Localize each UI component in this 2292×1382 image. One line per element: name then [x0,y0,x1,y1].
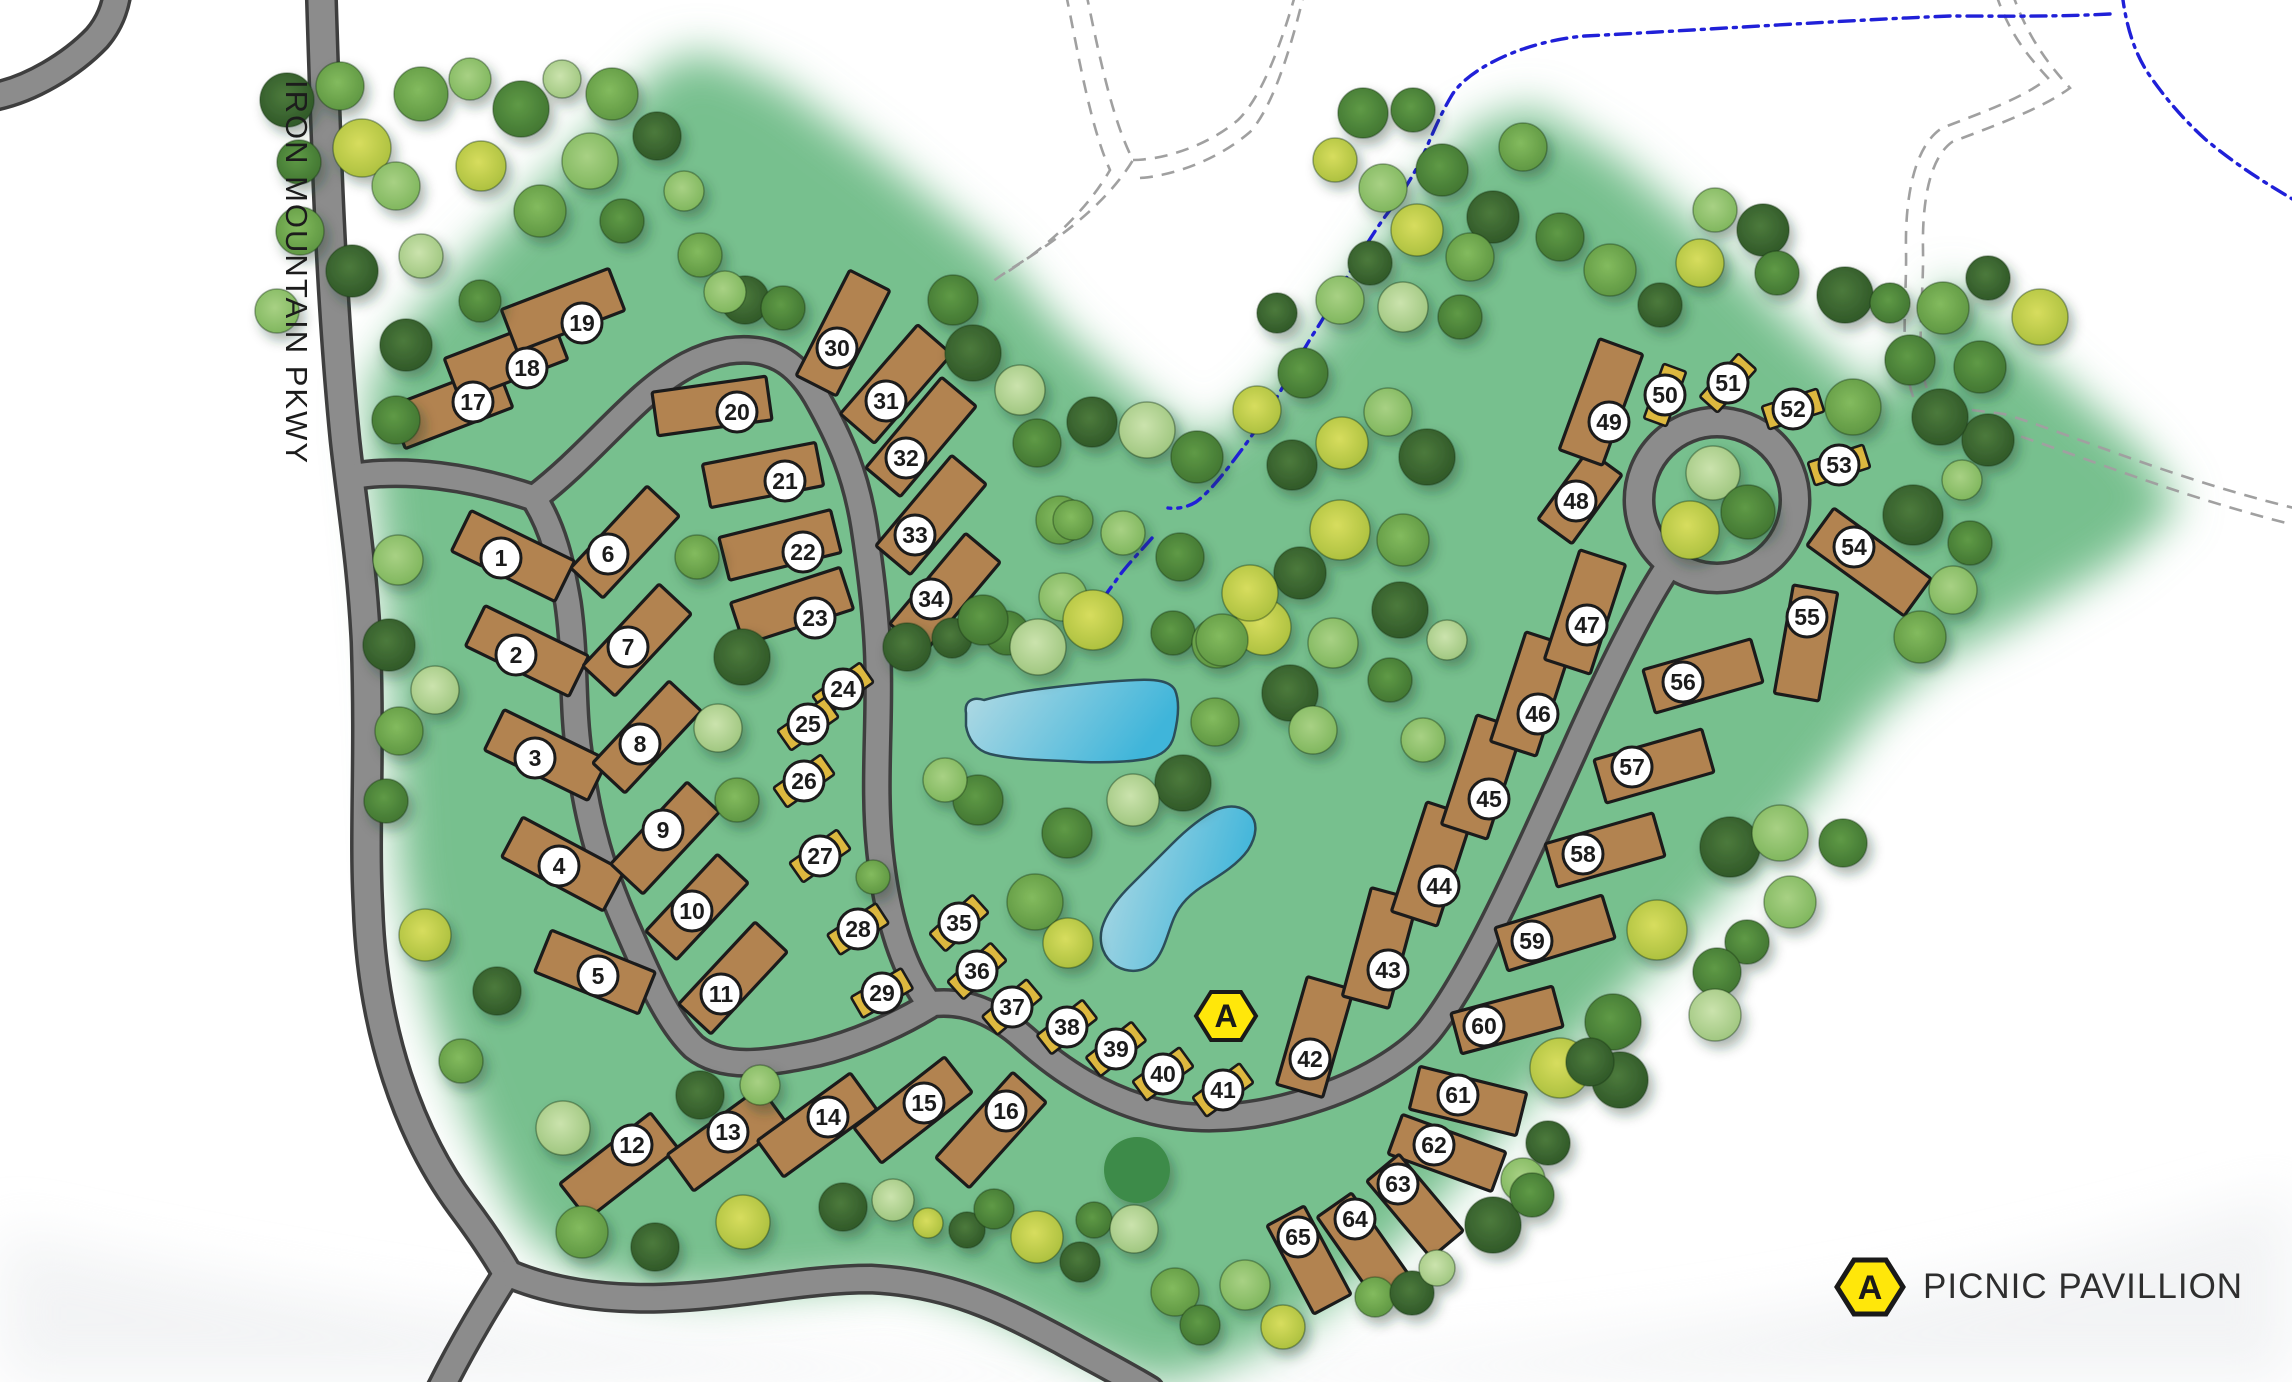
lot-8-badge: 8 [620,724,660,764]
tree [1368,658,1412,702]
tree [1156,533,1204,581]
tree [449,58,491,100]
tree [923,758,967,802]
tree [1013,419,1061,467]
lot-56-badge: 56 [1663,662,1703,702]
lot-58-badge: 58 [1563,834,1603,874]
tree [373,535,423,585]
tree [1359,164,1407,212]
tree [1107,774,1159,826]
tree [1289,706,1337,754]
tree [675,535,719,579]
lot-65-badge: 65 [1278,1217,1318,1257]
site-40-badge: 40 [1143,1054,1183,1094]
tree [1419,1250,1455,1286]
lot-2-badge: 2 [496,635,536,675]
lot-19-badge: 19 [562,303,602,343]
lot-57-badge-number: 57 [1619,754,1645,780]
lot-14-badge-number: 14 [815,1104,841,1130]
lot-11-badge: 11 [701,974,741,1014]
lot-61-badge-number: 61 [1445,1082,1471,1108]
lot-16-badge: 16 [986,1091,1026,1131]
tree [1401,718,1445,762]
site-39-badge: 39 [1096,1029,1136,1069]
lot-14-badge: 14 [808,1097,848,1137]
tree [1676,239,1724,287]
tree [1817,267,1873,323]
site-37-badge: 37 [992,987,1032,1027]
site-41-badge-number: 41 [1210,1077,1236,1103]
site-27-badge: 27 [800,836,840,876]
tree [536,1101,590,1155]
tree [399,909,451,961]
tree [1222,565,1278,621]
lot-2-badge-number: 2 [510,642,523,668]
tree [1526,1121,1570,1165]
site-29-badge: 29 [862,973,902,1013]
lot-21-badge: 21 [765,461,805,501]
lot-1-badge: 1 [481,538,521,578]
tree [704,271,746,313]
lot-9-badge-number: 9 [657,817,670,843]
tree [1267,440,1317,490]
tree [1076,1202,1112,1238]
tree [514,185,566,237]
site-53-badge-number: 53 [1826,452,1852,478]
tree [716,1195,770,1249]
tree [1917,282,1969,334]
lot-12-badge: 12 [612,1125,652,1165]
tree [1416,144,1468,196]
tree [586,68,638,120]
lot-10-badge-number: 10 [679,898,705,924]
lot-31-badge: 31 [866,381,906,421]
lot-7-badge-number: 7 [622,634,635,660]
site-38-badge: 38 [1047,1007,1087,1047]
road-label: IRON MOUNTAIN PKWY [278,80,314,465]
site-51-badge-number: 51 [1715,370,1741,396]
tree [1261,1305,1305,1349]
tree [694,704,742,752]
lot-63-badge-number: 63 [1385,1171,1411,1197]
lot-1-badge-number: 1 [495,545,508,571]
lot-48-badge: 48 [1556,481,1596,521]
lot-17-badge-number: 17 [460,389,486,415]
lot-20-badge-number: 20 [724,399,750,425]
lot-18-badge: 18 [507,348,547,388]
lot-21-badge-number: 21 [772,468,798,494]
tree [1067,397,1117,447]
site-50-badge: 50 [1645,375,1685,415]
stream-path [2122,0,2292,200]
lot-62-badge: 62 [1414,1125,1454,1165]
tree-canopy-circle [1104,1137,1170,1203]
tree [945,325,1001,381]
lot-47-badge: 47 [1567,605,1607,645]
tree [600,199,644,243]
lot-42-badge: 42 [1290,1039,1330,1079]
tree [740,1065,780,1105]
tree [676,1071,724,1119]
lot-48-badge-number: 48 [1563,488,1589,514]
tree [1929,566,1977,614]
tree [1885,335,1935,385]
lot-31-badge-number: 31 [873,388,899,414]
tree [1721,485,1775,539]
tree [1278,348,1328,398]
tree [364,779,408,823]
legend-marker-letter: A [1858,1269,1883,1307]
tree [1584,244,1636,296]
tree [1011,1211,1063,1263]
lot-43-badge-number: 43 [1375,957,1401,983]
lot-34-badge: 34 [911,579,951,619]
tree [1737,204,1789,256]
lot-22-badge-number: 22 [790,539,816,565]
tree [562,133,618,189]
tree [543,60,581,98]
tree [1693,188,1737,232]
lot-45-badge: 45 [1469,779,1509,819]
tree [1060,1242,1100,1282]
tree [1948,521,1992,565]
tree [1171,431,1223,483]
lot-10-badge: 10 [672,891,712,931]
tree [2012,289,2068,345]
lot-6-badge-number: 6 [602,541,615,567]
tree [631,1223,679,1271]
lot-13-badge: 13 [708,1112,748,1152]
tree [1700,817,1760,877]
tree [1316,276,1364,324]
tree [1427,620,1467,660]
lot-30-badge-number: 30 [824,335,850,361]
tree [1220,1260,1270,1310]
tree [1883,485,1943,545]
lot-49-badge: 49 [1589,402,1629,442]
trail-path [992,0,1110,282]
lot-65-badge-number: 65 [1285,1224,1311,1250]
lot-45-badge-number: 45 [1476,786,1502,812]
tree [375,707,423,755]
tree [326,245,378,297]
tree [1119,402,1175,458]
trail-path [1140,0,1304,178]
site-52-badge: 52 [1773,389,1813,429]
marker-layer: A [1196,992,1256,1040]
tree [380,319,432,371]
tree [1391,204,1443,256]
lot-57-badge: 57 [1612,747,1652,787]
lot-59-badge: 59 [1512,921,1552,961]
tree [1377,514,1429,566]
tree [1536,213,1584,261]
legend: A PICNIC PAVILLION [1833,1256,2243,1318]
tree [1316,417,1368,469]
lot-59-badge-number: 59 [1519,928,1545,954]
site-40-badge-number: 40 [1150,1061,1176,1087]
tree [1378,282,1428,332]
lot-23-badge: 23 [795,598,835,638]
site-52-badge-number: 52 [1780,396,1806,422]
tree [456,141,506,191]
tree [995,365,1045,415]
tree [399,234,443,278]
tree [1942,460,1982,500]
lot-47-badge-number: 47 [1574,612,1600,638]
lot-32-badge: 32 [886,438,926,478]
tree [1348,241,1392,285]
site-36-badge-number: 36 [964,958,990,984]
tree [1364,388,1412,436]
tree [1954,341,2006,393]
site-41-badge: 41 [1203,1070,1243,1110]
lot-44-badge-number: 44 [1426,873,1452,899]
trail-path [1133,0,1296,160]
lot-12-badge-number: 12 [619,1132,645,1158]
tree [1438,295,1482,339]
tree [633,112,681,160]
lot-62-badge-number: 62 [1421,1132,1447,1158]
site-53-badge: 53 [1819,445,1859,485]
site-29-badge-number: 29 [869,980,895,1006]
tree [1391,88,1435,132]
site-35-badge-number: 35 [946,910,972,936]
tree [715,778,759,822]
lot-55-badge-number: 55 [1794,604,1820,630]
tree [1661,501,1719,559]
tree [1510,1173,1554,1217]
site-24-badge-number: 24 [830,676,856,702]
lot-46-badge-number: 46 [1525,701,1551,727]
tree [678,233,722,277]
picnic-pavilion-marker: A [1196,992,1256,1040]
tree [1870,283,1910,323]
lot-61-badge: 61 [1438,1075,1478,1115]
site-39-badge-number: 39 [1103,1036,1129,1062]
tree [1627,900,1687,960]
lot-3-badge: 3 [515,738,555,778]
lot-32-badge-number: 32 [893,445,919,471]
site-map: 1234567891011121314151617181920212223303… [0,0,2292,1382]
tree [1053,500,1093,540]
tree [1338,88,1388,138]
site-35-badge: 35 [939,903,979,943]
tree [1764,876,1816,928]
site-36-badge: 36 [957,951,997,991]
site-27-badge-number: 27 [807,843,833,869]
lot-23-badge-number: 23 [802,605,828,631]
tree [1819,819,1867,867]
site-25-badge-number: 25 [795,711,821,737]
tree [556,1206,608,1258]
tree [316,62,364,110]
tree [1110,1205,1158,1253]
tree [664,171,704,211]
legend-label: PICNIC PAVILLION [1923,1267,2243,1307]
tree [1962,414,2014,466]
tree [1755,251,1799,295]
lot-15-badge-number: 15 [911,1090,937,1116]
tree [1689,989,1741,1041]
tree [1313,138,1357,182]
lot-13-badge-number: 13 [715,1119,741,1145]
lot-30-badge: 30 [817,328,857,368]
site-24-badge: 24 [823,669,863,709]
tree [493,81,549,137]
lot-5-badge: 5 [578,956,618,996]
lot-56-badge-number: 56 [1670,669,1696,695]
tree [1042,808,1092,858]
lot-33-badge-number: 33 [902,522,928,548]
tree [928,275,978,325]
lot-55-badge: 55 [1787,597,1827,637]
map-canvas: 1234567891011121314151617181920212223303… [0,0,2292,1382]
lot-63-badge: 63 [1378,1164,1418,1204]
tree [872,1179,914,1221]
lot-44-badge: 44 [1419,866,1459,906]
tree [1894,611,1946,663]
picnic-pavilion-letter: A [1214,998,1237,1034]
lot-34-badge-number: 34 [918,586,944,612]
lot-18-badge-number: 18 [514,355,540,381]
tree [1155,755,1211,811]
tree [974,1189,1014,1229]
lot-4-badge-number: 4 [553,853,566,879]
tree [1638,283,1682,327]
lot-33-badge: 33 [895,515,935,555]
tree [459,280,501,322]
tree [439,1039,483,1083]
lot-60-badge-number: 60 [1471,1013,1497,1039]
tree [819,1183,867,1231]
tree [856,860,890,894]
tree [1274,547,1326,599]
site-37-badge-number: 37 [999,994,1025,1020]
tree [473,967,521,1015]
lot-58-badge-number: 58 [1570,841,1596,867]
lot-46-badge: 46 [1518,694,1558,734]
lot-43-badge: 43 [1368,950,1408,990]
lot-7-badge: 7 [608,627,648,667]
tree [1180,1305,1220,1345]
site-26-badge-number: 26 [791,768,817,794]
tree [1101,511,1145,555]
tree [394,67,448,121]
lot-6-badge: 6 [588,534,628,574]
lot-64-badge: 64 [1335,1199,1375,1239]
lot-9-badge: 9 [643,810,683,850]
tree [714,629,770,685]
tree [1355,1277,1395,1317]
lot-16-badge-number: 16 [993,1098,1019,1124]
tree [1566,1038,1614,1086]
lot-54-badge: 54 [1834,527,1874,567]
tree [1499,123,1547,171]
lot-8-badge-number: 8 [634,731,647,757]
lot-4-badge: 4 [539,846,579,886]
tree [1912,389,1968,445]
tree [1825,379,1881,435]
site-28-badge-number: 28 [845,916,871,942]
tree [1043,918,1093,968]
site-28-badge: 28 [838,909,878,949]
tree [913,1208,943,1238]
site-26-badge: 26 [784,761,824,801]
lot-54-badge-number: 54 [1841,534,1867,560]
tree [1308,618,1358,668]
lot-22-badge: 22 [783,532,823,572]
lot-11-badge-number: 11 [709,981,734,1007]
tree [411,666,459,714]
tree [761,286,805,330]
picnic-pavilion-legend-icon: A [1833,1256,1907,1318]
tree [1010,619,1066,675]
lot-49-badge-number: 49 [1596,409,1622,435]
lot-5-badge-number: 5 [592,963,605,989]
site-50-badge-number: 50 [1652,382,1678,408]
site-38-badge-number: 38 [1054,1014,1080,1040]
tree [1257,293,1297,333]
lot-17-badge: 17 [453,382,493,422]
lot-15-badge: 15 [904,1083,944,1123]
tree [1151,611,1195,655]
site-51-badge: 51 [1708,363,1748,403]
tree [1191,698,1239,746]
tree [1399,429,1455,485]
tree [1196,614,1248,666]
tree [1063,590,1123,650]
tree [1233,386,1281,434]
tree [883,623,931,671]
tree [1446,233,1494,281]
lot-42-badge-number: 42 [1297,1046,1323,1072]
tree [372,396,420,444]
tree [372,162,420,210]
lot-64-badge-number: 64 [1342,1206,1368,1232]
tree [1752,805,1808,861]
lot-20-badge: 20 [717,392,757,432]
trail-path [1002,0,1133,276]
lot-19-badge-number: 19 [569,310,595,336]
tree [1310,500,1370,560]
tree [958,595,1008,645]
lot-3-badge-number: 3 [529,745,542,771]
site-25-badge: 25 [788,704,828,744]
tree [1966,256,2010,300]
lot-60-badge: 60 [1464,1006,1504,1046]
tree [363,619,415,671]
tree [1372,582,1428,638]
